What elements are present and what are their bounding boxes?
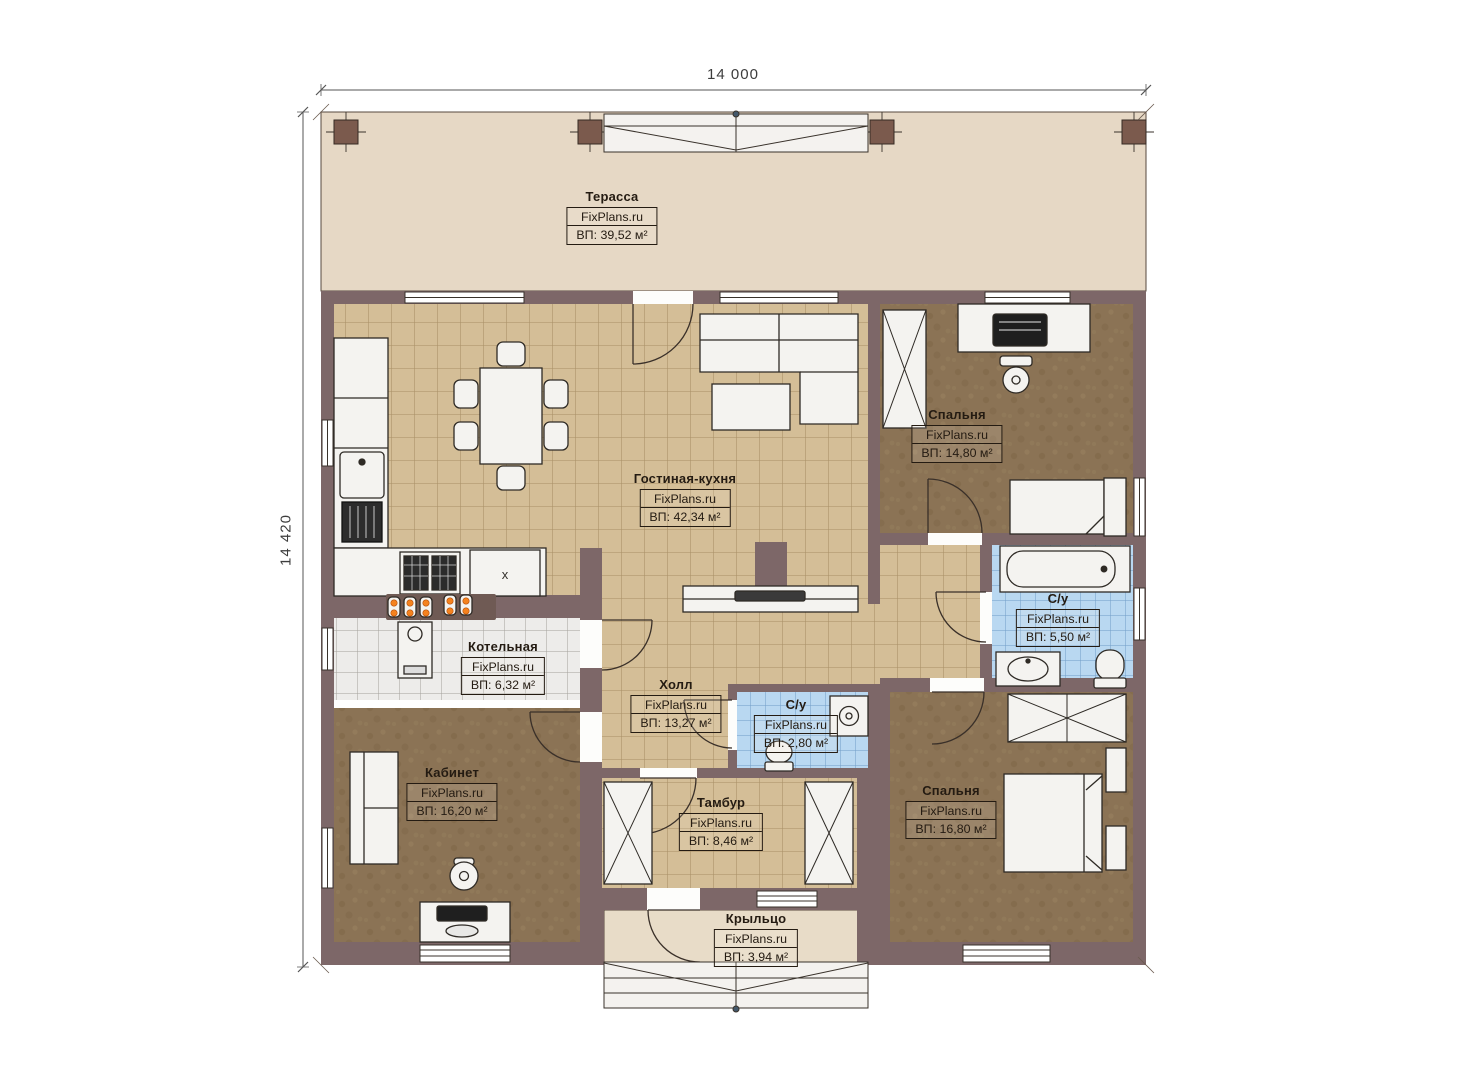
watermark: FixPlans.ru: [631, 696, 720, 714]
room-area: ВП: 8,46 м²: [680, 832, 762, 850]
room-info-box: FixPlans.ru ВП: 39,52 м²: [566, 207, 657, 245]
room-area: ВП: 5,50 м²: [1017, 628, 1099, 646]
room-area: ВП: 2,80 м²: [755, 734, 837, 752]
room-info-box: FixPlans.ru ВП: 2,80 м²: [754, 715, 838, 753]
window-kitchen-left: [322, 420, 333, 466]
room-label-vestibule: Тамбур FixPlans.ru ВП: 8,46 м²: [679, 796, 763, 851]
room-area: ВП: 6,32 м²: [462, 676, 544, 694]
wall-vestibule-bottom: [602, 888, 868, 910]
bed-single: [1010, 478, 1126, 536]
wardrobe-bedroom-bottom: [1008, 694, 1126, 742]
room-label-office: Кабинет FixPlans.ru ВП: 16,20 м²: [406, 766, 497, 821]
room-label-porch: Крыльцо FixPlans.ru ВП: 3,94 м²: [714, 912, 798, 967]
room-info-box: FixPlans.ru ВП: 3,94 м²: [714, 929, 798, 967]
office-chair: [450, 858, 478, 890]
room-label-bedroom-top: Спальня FixPlans.ru ВП: 14,80 м²: [911, 408, 1002, 463]
dining-chair: [544, 380, 568, 408]
nightstand: [1106, 748, 1126, 792]
room-label-terrace: Терасса FixPlans.ru ВП: 39,52 м²: [566, 190, 657, 245]
room-label-boiler: Котельная FixPlans.ru ВП: 6,32 м²: [461, 640, 545, 695]
room-name: Спальня: [911, 408, 1002, 423]
desk-office: [420, 902, 510, 942]
office-chair-bedroom-top: [1000, 356, 1032, 393]
room-area: ВП: 39,52 м²: [567, 226, 656, 244]
floor-corridor: [880, 545, 980, 678]
room-name: Терасса: [566, 190, 657, 205]
dining-chair: [454, 380, 478, 408]
sink-bathroom-large: [996, 652, 1060, 686]
room-info-box: FixPlans.ru ВП: 16,20 м²: [406, 783, 497, 821]
coffee-table: [712, 384, 790, 430]
dimension-width: [316, 84, 1151, 96]
room-name: Котельная: [461, 640, 545, 655]
kitchen-sink: [340, 452, 384, 542]
room-name: С/у: [1016, 592, 1100, 607]
room-area: ВП: 16,20 м²: [407, 802, 496, 820]
room-area: ВП: 42,34 м²: [640, 508, 729, 526]
room-info-box: FixPlans.ru ВП: 5,50 м²: [1016, 609, 1100, 647]
steps-terrace: [604, 111, 868, 152]
wall-living-bedroom: [868, 291, 880, 604]
room-area: ВП: 13,27 м²: [631, 714, 720, 732]
dimension-width-label: 14 000: [707, 66, 759, 83]
window-bedroom-top: [985, 292, 1070, 303]
watermark: FixPlans.ru: [1017, 610, 1099, 628]
dining-chair: [497, 466, 525, 490]
window-kitchen-top: [405, 292, 524, 303]
room-name: Гостиная-кухня: [634, 472, 736, 487]
room-name: С/у: [754, 698, 838, 713]
room-area: ВП: 14,80 м²: [912, 444, 1001, 462]
desk-bedroom-top: [958, 304, 1090, 352]
bathtub: [1000, 546, 1130, 592]
room-area: ВП: 16,80 м²: [906, 820, 995, 838]
window-office-left: [322, 828, 333, 888]
window-living-top: [720, 292, 838, 303]
window-office-bottom: [420, 945, 510, 962]
wall-vestibule-right: [857, 778, 880, 888]
watermark: FixPlans.ru: [715, 930, 797, 948]
room-label-bedroom-bottom: Спальня FixPlans.ru ВП: 16,80 м²: [905, 784, 996, 839]
dining-chair: [544, 422, 568, 450]
dining-chair: [497, 342, 525, 366]
wall-bathroom-small-top: [728, 684, 880, 692]
steps-porch: [604, 962, 868, 1012]
room-name: Спальня: [905, 784, 996, 799]
watermark: FixPlans.ru: [680, 814, 762, 832]
room-name: Тамбур: [679, 796, 763, 811]
window-bathroom-right: [1134, 588, 1145, 640]
heating-manifold: [386, 594, 496, 620]
watermark: FixPlans.ru: [912, 426, 1001, 444]
sofa-office: [350, 752, 398, 864]
wardrobe-vestibule-right: [805, 782, 853, 884]
room-label-bathroom-small: С/у FixPlans.ru ВП: 2,80 м²: [754, 698, 838, 753]
room-info-box: FixPlans.ru ВП: 8,46 м²: [679, 813, 763, 851]
watermark: FixPlans.ru: [462, 658, 544, 676]
room-info-box: FixPlans.ru ВП: 13,27 м²: [630, 695, 721, 733]
room-name: Крыльцо: [714, 912, 798, 927]
wall-bedroom-top-bottom: [880, 533, 1134, 545]
watermark: FixPlans.ru: [755, 716, 837, 734]
window-bedroom-right: [1134, 478, 1145, 536]
room-name: Кабинет: [406, 766, 497, 781]
room-label-hall: Холл FixPlans.ru ВП: 13,27 м²: [630, 678, 721, 733]
watermark: FixPlans.ru: [640, 490, 729, 508]
watermark: FixPlans.ru: [906, 802, 995, 820]
watermark: FixPlans.ru: [567, 208, 656, 226]
nightstand: [1106, 826, 1126, 870]
room-name: Холл: [630, 678, 721, 693]
room-info-box: FixPlans.ru ВП: 14,80 м²: [911, 425, 1002, 463]
tv-console: [683, 586, 858, 612]
room-info-box: FixPlans.ru ВП: 16,80 м²: [905, 801, 996, 839]
dishwasher-unit: x: [470, 550, 540, 596]
stove: [400, 552, 460, 594]
room-area: ВП: 3,94 м²: [715, 948, 797, 966]
window-boiler-left: [322, 628, 333, 670]
watermark: FixPlans.ru: [407, 784, 496, 802]
room-label-living-kitchen: Гостиная-кухня FixPlans.ru ВП: 42,34 м²: [634, 472, 736, 527]
dimension-height: [297, 107, 309, 972]
window-vestibule-bottom: [757, 891, 817, 907]
window-bedroom-bottom: [963, 945, 1050, 962]
boiler-appliance: [398, 622, 432, 678]
wall-bedroom-bottom-left: [880, 692, 890, 942]
dining-chair: [454, 422, 478, 450]
wardrobe-vestibule-left: [604, 782, 652, 884]
dimension-height-label: 14 420: [278, 514, 295, 566]
wall-bathroom-small-right: [868, 692, 880, 768]
unit-mark-label: x: [502, 567, 509, 582]
room-label-bathroom-large: С/у FixPlans.ru ВП: 5,50 м²: [1016, 592, 1100, 647]
toilet-bathroom-large: [1094, 650, 1126, 688]
room-info-box: FixPlans.ru ВП: 6,32 м²: [461, 657, 545, 695]
room-info-box: FixPlans.ru ВП: 42,34 м²: [639, 489, 730, 527]
floor-plan: x: [0, 0, 1473, 1080]
